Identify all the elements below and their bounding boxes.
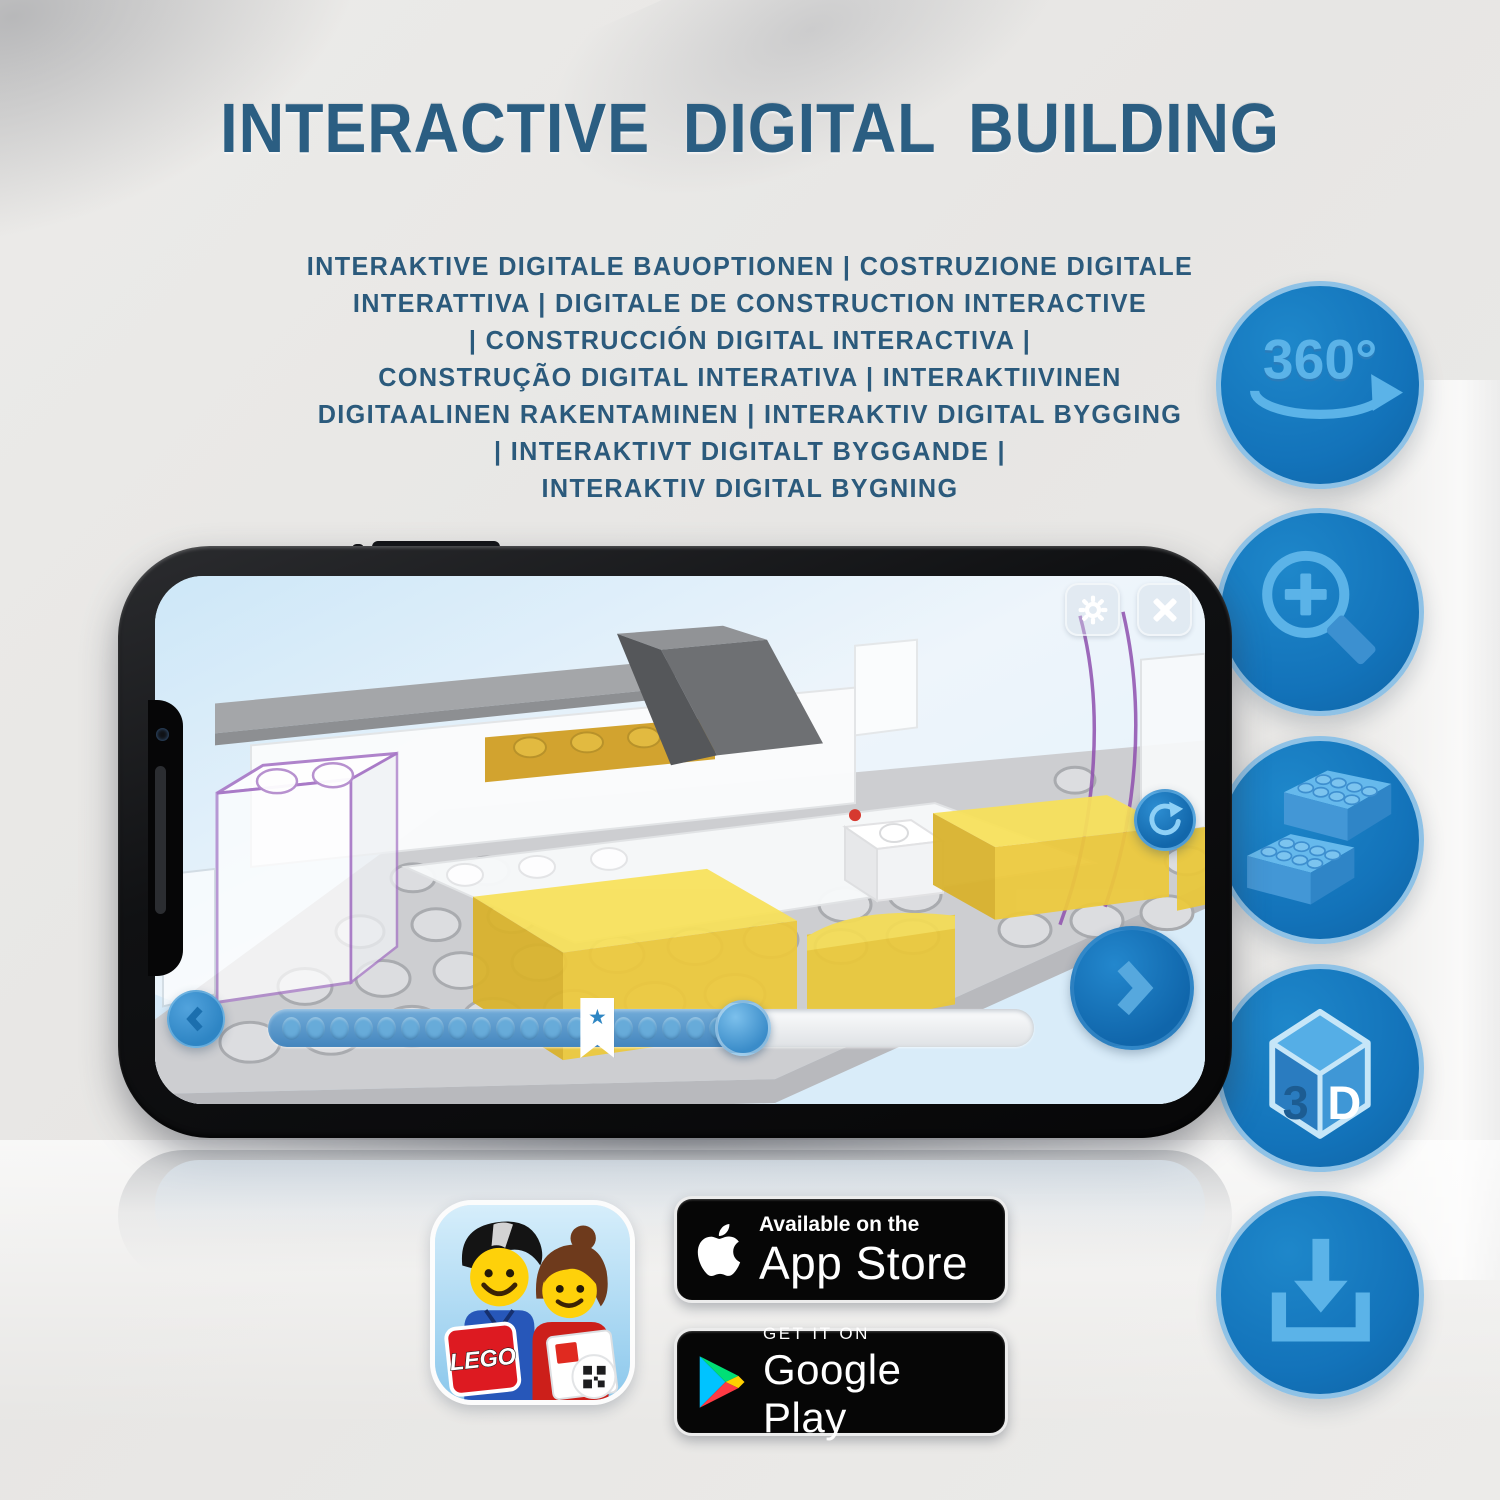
slider-dot	[638, 1017, 657, 1040]
google-play-icon	[693, 1354, 749, 1410]
slider-dot	[472, 1017, 491, 1040]
download-icon	[1232, 1207, 1408, 1383]
slider-dot	[543, 1017, 562, 1040]
chevron-left-icon	[181, 1004, 211, 1034]
google-play-badge[interactable]: GET IT ON Google Play	[674, 1328, 1008, 1436]
google-play-badge-main-text: Google Play	[763, 1346, 989, 1442]
slider-dot	[448, 1017, 467, 1040]
close-button[interactable]	[1137, 583, 1192, 636]
rotate-icon	[1144, 799, 1186, 841]
lego-app-promo-poster: INTERACTIVE DIGITAL BUILDING INTERAKTIVE…	[0, 0, 1500, 1500]
slider-dot	[377, 1017, 396, 1040]
phone-mockup: ★	[118, 546, 1232, 1138]
rotate-view-button[interactable]	[1134, 789, 1196, 851]
feature-360-rotation: 360° 360°	[1216, 281, 1424, 489]
brick-icon	[1232, 752, 1408, 928]
slider-dot	[614, 1017, 633, 1040]
slider-dot	[330, 1017, 349, 1040]
chevron-right-icon	[1099, 955, 1165, 1021]
app-store-badge[interactable]: Available on the App Store	[674, 1196, 1008, 1303]
app-store-badge-main-text: App Store	[759, 1238, 968, 1288]
zoom-in-icon	[1232, 524, 1408, 700]
progress-slider[interactable]: ★	[268, 1009, 1034, 1047]
feature-brick	[1216, 736, 1424, 944]
subtitle-line: INTERAKTIV DIGITAL BYGNING	[23, 470, 1478, 507]
feature-download	[1216, 1191, 1424, 1399]
slider-dots	[268, 1009, 743, 1047]
360-rotation-icon: 360° 360°	[1232, 297, 1408, 473]
feature-3d-view: 3 D	[1216, 964, 1424, 1172]
slider-dot	[282, 1017, 301, 1040]
phone-notch	[148, 700, 183, 976]
slider-dot	[520, 1017, 539, 1040]
lego-app-icon[interactable]: LEGO	[430, 1200, 635, 1405]
page-title: INTERACTIVE DIGITAL BUILDING	[75, 88, 1425, 168]
gear-icon	[1075, 592, 1111, 628]
feature-zoom	[1216, 508, 1424, 716]
slider-dot	[496, 1017, 515, 1040]
earpiece-speaker	[155, 766, 166, 914]
apple-icon	[693, 1220, 745, 1280]
slider-dot	[401, 1017, 420, 1040]
slider-dot	[306, 1017, 325, 1040]
slider-dot	[425, 1017, 444, 1040]
phone-screen: ★	[155, 576, 1205, 1104]
slider-dot	[686, 1017, 705, 1040]
slider-thumb[interactable]	[715, 1000, 771, 1056]
slider-dot	[662, 1017, 681, 1040]
3d-cube-icon: 3 D	[1232, 980, 1408, 1156]
app-store-badge-top-text: Available on the	[759, 1212, 968, 1238]
google-play-badge-top-text: GET IT ON	[763, 1322, 989, 1346]
front-camera	[156, 728, 169, 741]
close-icon	[1147, 592, 1183, 628]
previous-step-button[interactable]	[167, 990, 225, 1048]
lego-app-icon-art: LEGO	[435, 1205, 630, 1400]
subtitle-line: INTERAKTIVE DIGITALE BAUOPTIONEN | COSTR…	[23, 248, 1478, 285]
svg-text:3: 3	[1283, 1077, 1309, 1129]
svg-text:360°: 360°	[1263, 328, 1377, 390]
settings-button[interactable]	[1065, 583, 1120, 636]
slider-dot	[354, 1017, 373, 1040]
slider-fill	[268, 1009, 743, 1047]
svg-text:D: D	[1327, 1077, 1361, 1129]
next-step-button[interactable]	[1070, 926, 1194, 1050]
